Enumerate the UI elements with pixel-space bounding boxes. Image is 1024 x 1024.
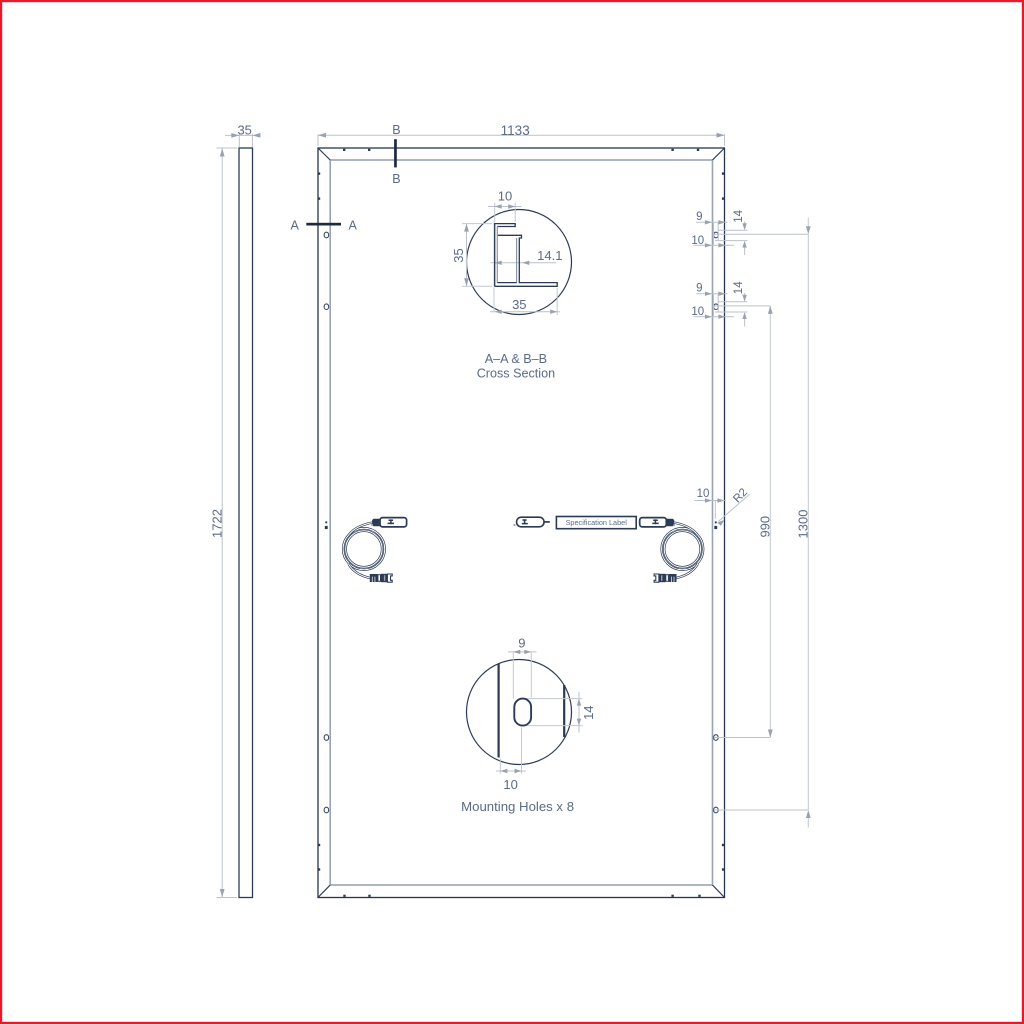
svg-text:1722: 1722: [210, 509, 225, 538]
svg-text:9: 9: [696, 282, 702, 294]
svg-text:9: 9: [518, 636, 525, 651]
svg-text:10: 10: [503, 777, 517, 792]
svg-text:B: B: [392, 172, 400, 186]
svg-text:14: 14: [733, 209, 745, 222]
svg-text:10: 10: [691, 306, 704, 318]
svg-text:Specification Label: Specification Label: [566, 518, 628, 527]
svg-text:35: 35: [237, 123, 251, 138]
svg-text:A: A: [349, 219, 358, 233]
svg-text:10: 10: [691, 235, 704, 247]
svg-text:14.1: 14.1: [537, 248, 562, 263]
svg-text:9: 9: [696, 211, 702, 223]
svg-text:Cross Section: Cross Section: [477, 366, 555, 380]
svg-text:A–A & B–B: A–A & B–B: [485, 352, 547, 366]
svg-text:1133: 1133: [501, 123, 530, 138]
svg-text:35: 35: [512, 297, 526, 312]
svg-text:35: 35: [451, 248, 466, 262]
svg-text:Mounting Holes x 8: Mounting Holes x 8: [461, 799, 574, 814]
svg-text:10: 10: [697, 488, 710, 500]
svg-text:14: 14: [581, 705, 596, 719]
svg-text:10: 10: [498, 188, 512, 203]
svg-text:1300: 1300: [796, 510, 811, 539]
svg-text:990: 990: [757, 516, 772, 538]
svg-text:A: A: [291, 219, 300, 233]
svg-text:14: 14: [733, 281, 745, 294]
svg-text:B: B: [392, 123, 400, 137]
